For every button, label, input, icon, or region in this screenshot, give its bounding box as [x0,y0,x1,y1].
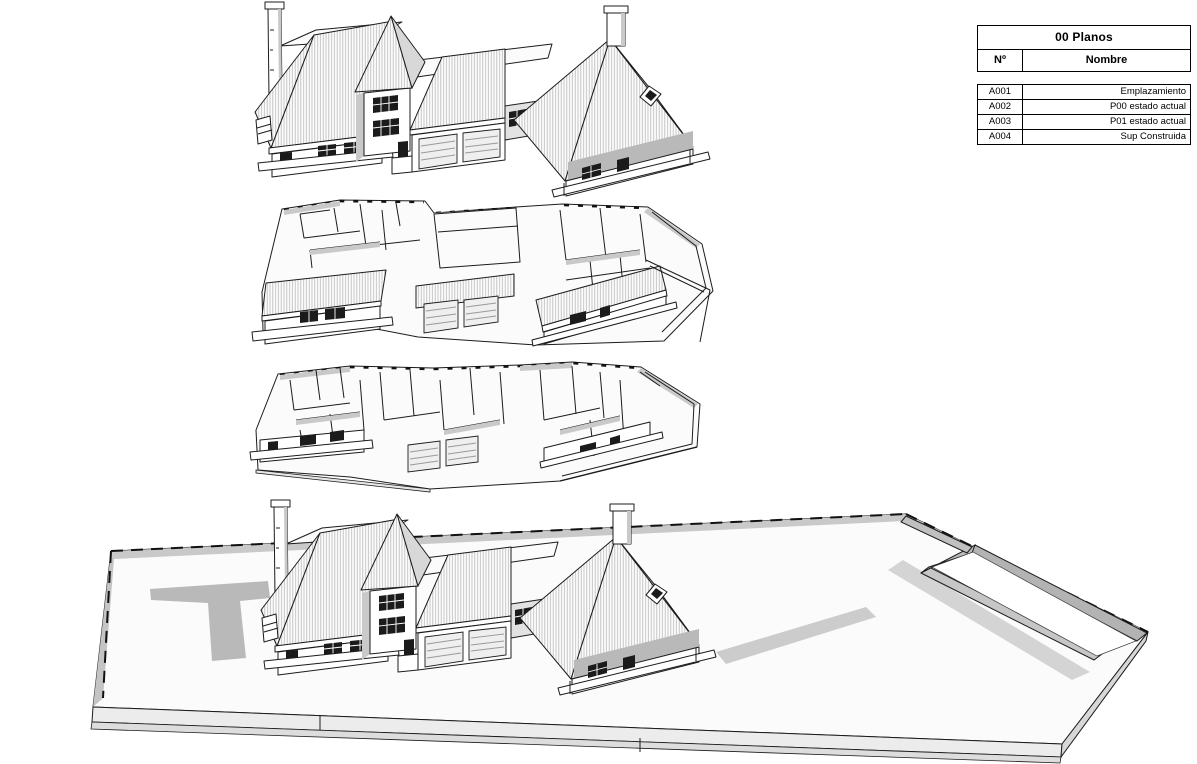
sheet-list-schedule[interactable]: 00 Planos Nº Nombre A001 Emplazamiento A… [977,25,1191,145]
sheet-row-a002[interactable]: A002 P00 estado actual [978,100,1190,115]
viewport-ground-floor-3d[interactable] [250,362,700,492]
sheet-number: A003 [978,115,1023,129]
drawing-sheet: 00 Planos Nº Nombre A001 Emplazamiento A… [0,0,1197,764]
schedule-rows: A001 Emplazamiento A002 P00 estado actua… [977,84,1191,145]
sheet-row-a001[interactable]: A001 Emplazamiento [978,85,1190,100]
sheet-number: A002 [978,100,1023,114]
viewport-site-3d[interactable] [91,500,1148,763]
sheet-name: Emplazamiento [1023,85,1190,99]
sheet-row-a003[interactable]: A003 P01 estado actual [978,115,1190,130]
sheet-name: Sup Construida [1023,130,1190,144]
sheet-row-a004[interactable]: A004 Sup Construida [978,130,1190,144]
sheet-name: P01 estado actual [1023,115,1190,129]
viewport-upper-floor-3d[interactable] [252,200,713,346]
sheet-number: A001 [978,85,1023,99]
schedule-title: 00 Planos [978,26,1190,50]
sheet-name: P00 estado actual [1023,100,1190,114]
column-header-name: Nombre [1023,50,1190,71]
schedule-header: 00 Planos Nº Nombre [977,25,1191,72]
column-header-number: Nº [978,50,1023,71]
sheet-number: A004 [978,130,1023,144]
viewport-full-model-3d[interactable] [255,2,710,197]
